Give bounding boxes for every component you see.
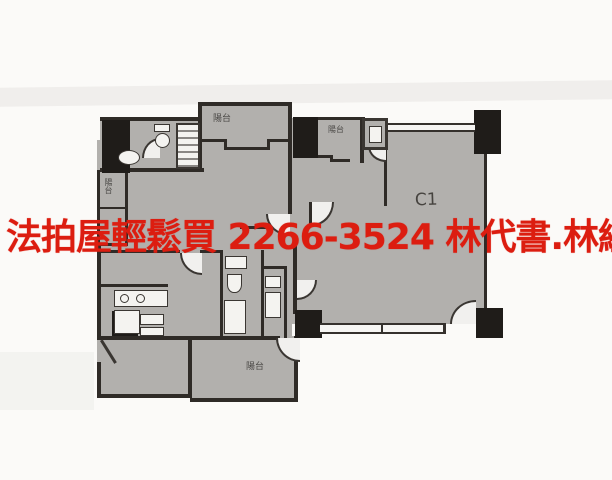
sliding-door-segment bbox=[202, 139, 224, 142]
column bbox=[476, 308, 503, 338]
wall-segment bbox=[97, 394, 192, 398]
closet-hatch bbox=[176, 123, 200, 169]
column bbox=[102, 120, 130, 173]
sink-fixture bbox=[265, 276, 281, 288]
shower-fixture bbox=[265, 292, 281, 318]
sliding-door-segment bbox=[332, 159, 350, 162]
window-mullion bbox=[443, 323, 446, 334]
window-band bbox=[320, 332, 446, 334]
sliding-door-segment bbox=[224, 147, 270, 150]
scanned-floor-plan-page: 陽台 陽台 陽台 陽台 C1 法拍屋輕鬆買 2266-3524 林代書.林經理 bbox=[0, 0, 612, 480]
balcony-bottom-label: 陽台 bbox=[246, 363, 264, 372]
kitchen-cabinet-fixture bbox=[114, 310, 140, 334]
sliding-door-segment bbox=[330, 155, 333, 162]
column bbox=[474, 110, 501, 154]
bathtub-fixture bbox=[224, 300, 246, 334]
wall-segment bbox=[190, 398, 298, 402]
window-band bbox=[387, 130, 475, 132]
column bbox=[295, 310, 322, 338]
wall-segment bbox=[100, 284, 168, 287]
shaft-label: 陽台 bbox=[104, 178, 112, 194]
toilet-tank-fixture bbox=[154, 124, 170, 132]
balcony-mid-label: 陽台 bbox=[328, 126, 344, 134]
sink-fixture bbox=[118, 150, 140, 165]
balcony-top-label: 陽台 bbox=[213, 115, 231, 124]
unit-label-c1: C1 bbox=[415, 190, 438, 211]
wall-segment bbox=[288, 102, 292, 142]
wall-segment bbox=[97, 246, 101, 338]
window-mullion bbox=[381, 323, 383, 334]
wall-segment bbox=[190, 336, 280, 340]
wall-segment bbox=[261, 266, 287, 269]
wall-segment bbox=[284, 266, 287, 338]
stove-burner-icon bbox=[120, 294, 129, 303]
room-bottom-left bbox=[97, 336, 191, 398]
toilet-bowl-fixture bbox=[227, 274, 242, 293]
cabinet-fixture bbox=[140, 314, 164, 325]
wall-segment bbox=[220, 250, 223, 338]
wall-segment bbox=[188, 338, 192, 398]
sliding-door-segment bbox=[224, 139, 227, 150]
wall-segment bbox=[97, 362, 101, 398]
wall-segment bbox=[198, 102, 292, 106]
sliding-door-segment bbox=[268, 139, 290, 142]
column bbox=[293, 117, 318, 158]
wall-segment bbox=[315, 117, 365, 120]
cabinet-fixture bbox=[140, 327, 164, 336]
window-band bbox=[320, 325, 446, 332]
watermark-text: 法拍屋輕鬆買 2266-3524 林代書.林經理 bbox=[6, 218, 612, 258]
wall-segment bbox=[97, 336, 194, 340]
wall-segment bbox=[99, 207, 127, 209]
wall-segment bbox=[261, 250, 264, 338]
water-heater-fixture bbox=[369, 126, 382, 143]
sliding-door-segment bbox=[267, 139, 270, 150]
wall-segment bbox=[288, 140, 292, 214]
stove-burner-icon bbox=[136, 294, 145, 303]
toilet-bowl-fixture bbox=[155, 133, 170, 148]
